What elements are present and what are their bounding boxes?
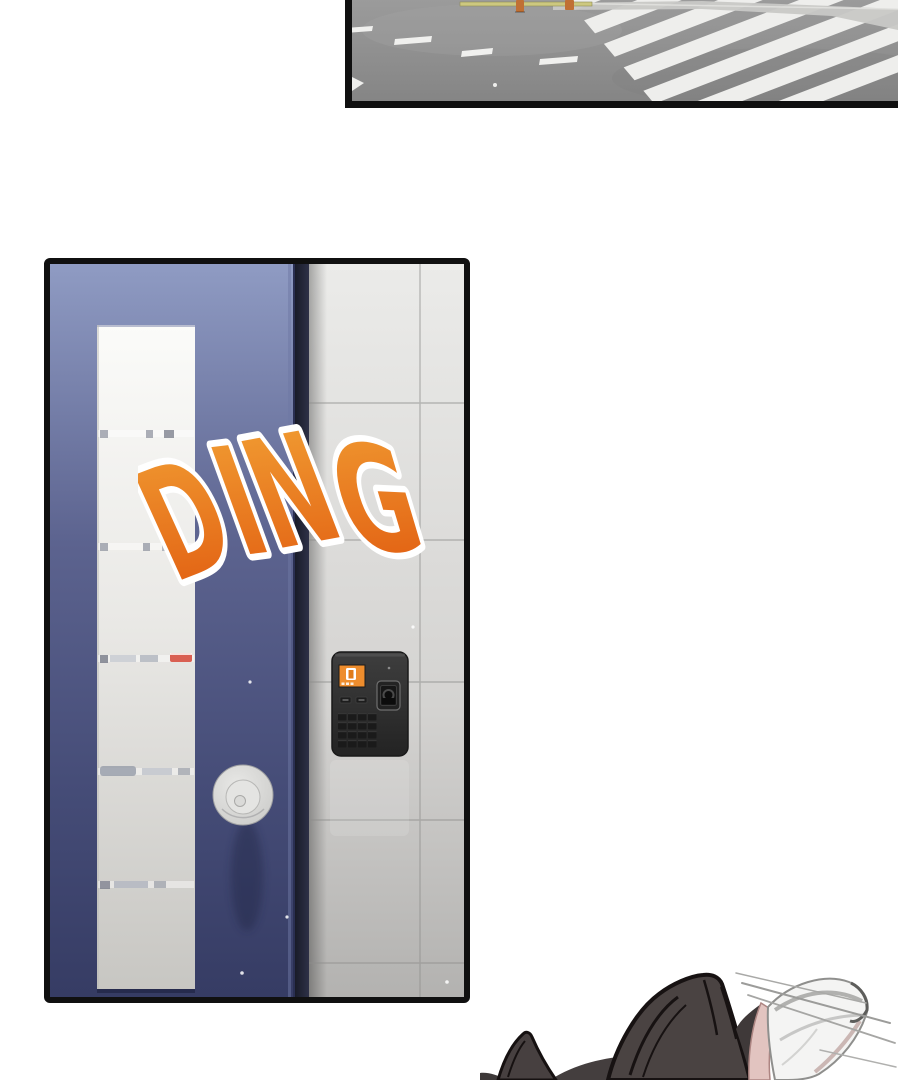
door-edge-highlight [288,264,291,997]
keypad-mount-sheen [330,760,409,836]
wall-shadow [309,264,327,997]
tile-wall [309,264,464,997]
shelf-streak [98,543,194,551]
knob-shadow [231,821,263,931]
door-gap-shadow [295,264,309,997]
shelf-streak [98,430,194,438]
keypad-top-highlight [335,654,405,657]
led-dot [388,667,391,670]
shelf-streak [98,881,194,889]
door-knob [213,765,273,825]
street-panel [345,0,898,108]
door-panel [44,258,470,1003]
keypad-screen [339,665,365,687]
door-icon-inner [349,670,354,679]
glass-bottom-edge [97,989,195,993]
cat-ear-right [608,975,750,1080]
door-scene [50,264,464,997]
street-scene [352,0,898,101]
door-edge-line [293,264,295,997]
keypad-device [330,652,409,836]
glass-top-edge [97,325,195,327]
card-reader [377,681,400,710]
character-head [480,955,898,1080]
screen-caption-marks [342,683,354,686]
cat-ear-left [498,1032,556,1080]
fence-post [516,0,524,12]
road-dot [493,83,497,87]
fence-post-shadow [515,11,525,13]
fence-post [565,0,574,10]
comic-page: DING [0,0,898,1080]
